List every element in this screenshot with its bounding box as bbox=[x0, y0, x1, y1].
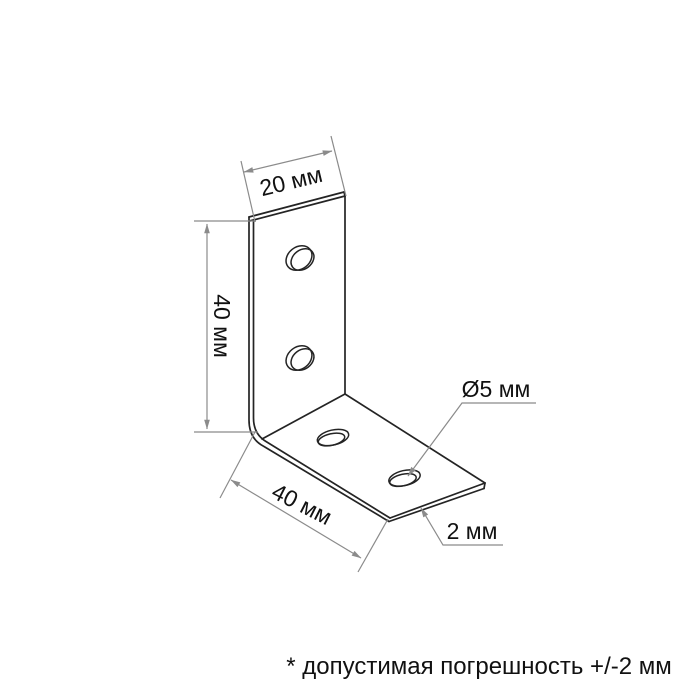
bracket-diagram-canvas: 20 мм 40 мм 40 мм Ø5 мм 2 мм * допустима… bbox=[0, 0, 700, 700]
callout-hole-diameter-label: Ø5 мм bbox=[462, 376, 531, 402]
dim-vertical-leg-label: 40 мм bbox=[209, 294, 235, 358]
tolerance-footnote: * допустимая погрешность +/-2 мм bbox=[286, 653, 672, 680]
background bbox=[0, 0, 700, 700]
product-dimension-diagram: 20 мм 40 мм 40 мм Ø5 мм 2 мм * допустима… bbox=[0, 0, 700, 700]
callout-thickness-label: 2 мм bbox=[447, 518, 498, 544]
